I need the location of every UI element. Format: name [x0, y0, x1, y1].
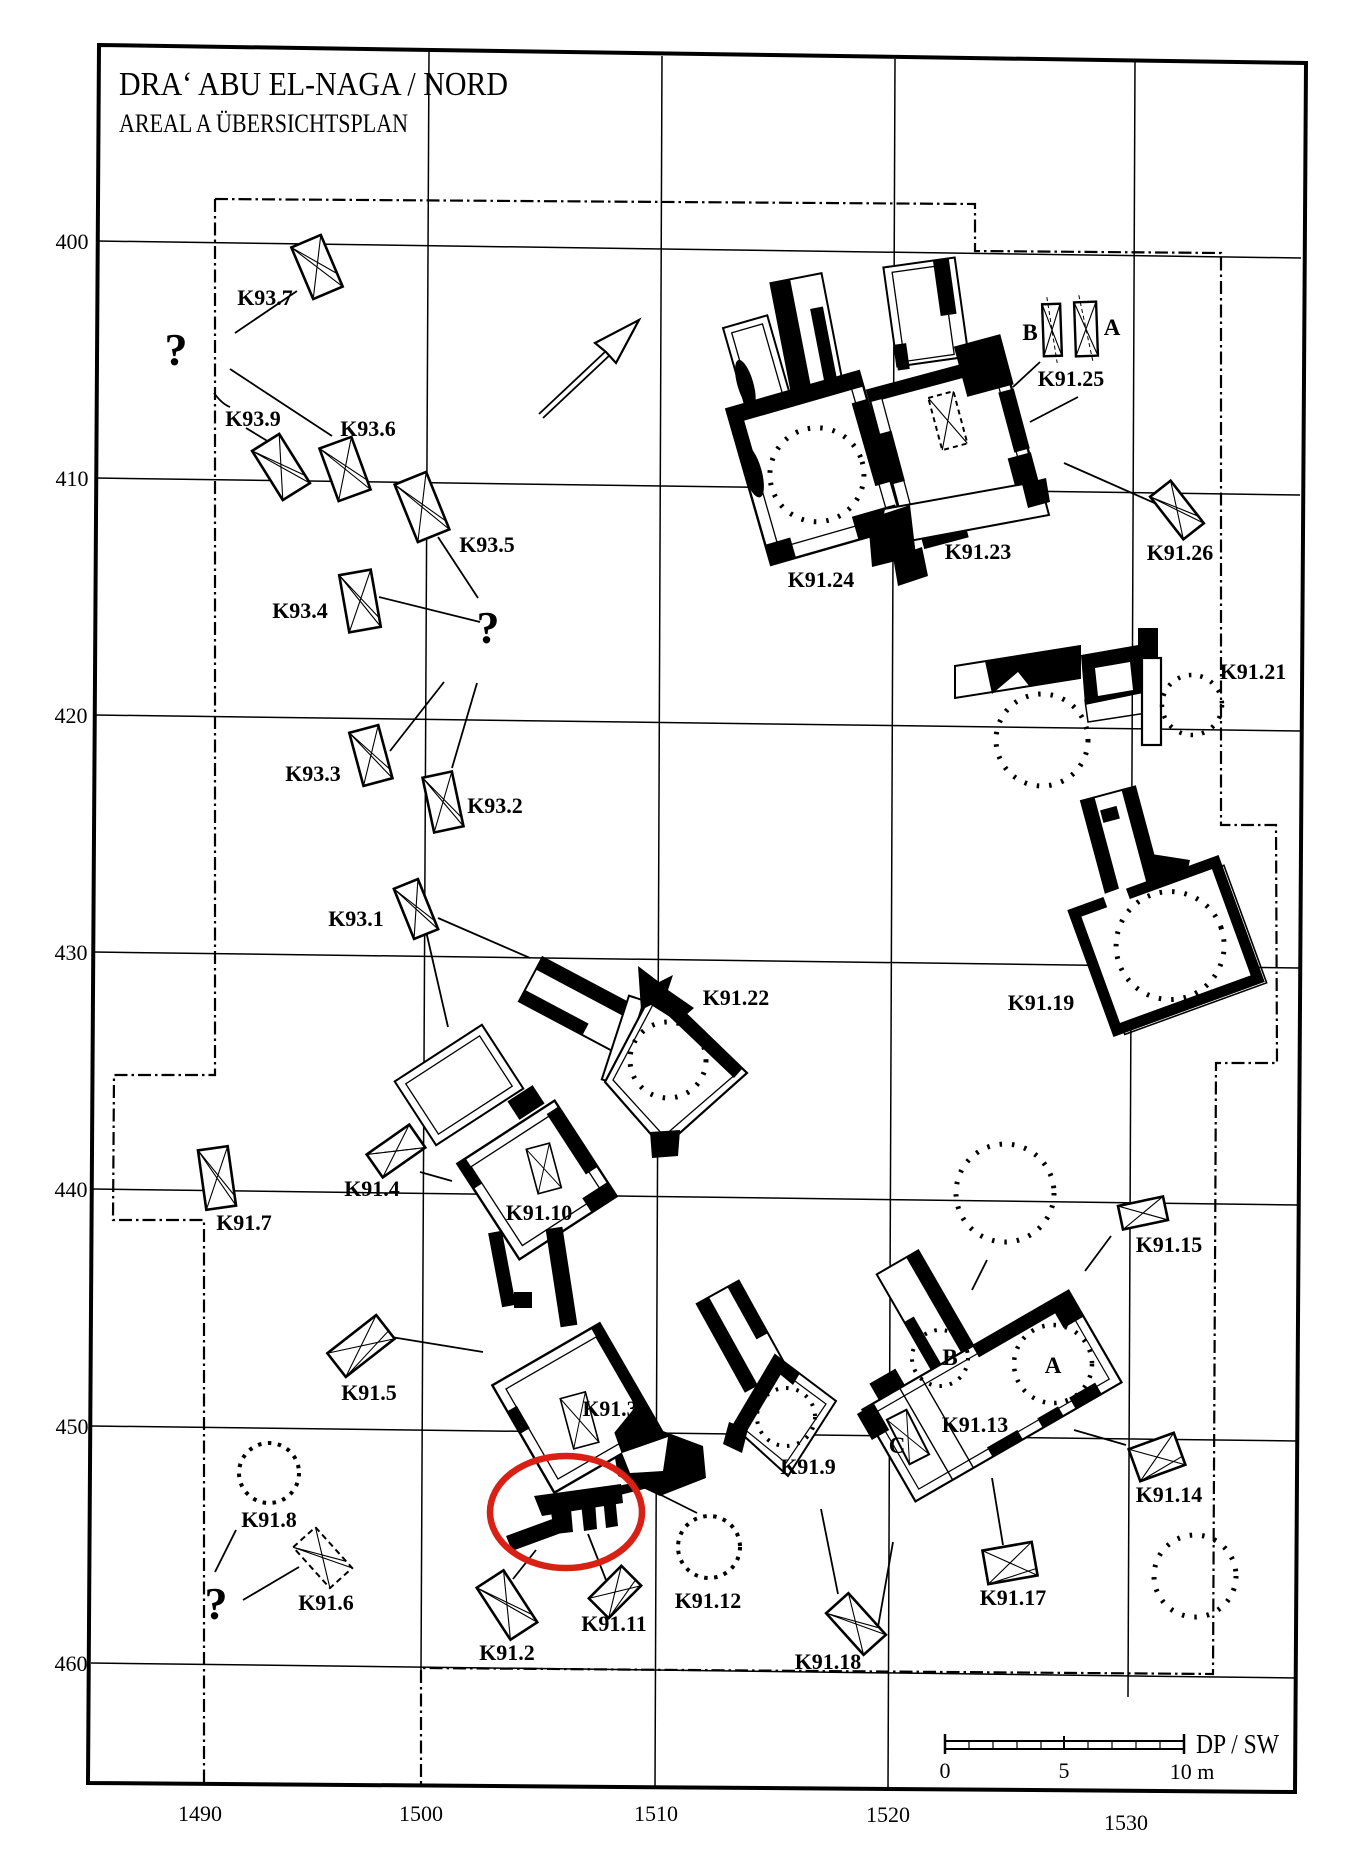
- svg-text:DP / SW: DP / SW: [1196, 1729, 1279, 1759]
- svg-text:K91.21: K91.21: [1220, 659, 1287, 684]
- svg-text:K91.25: K91.25: [1038, 366, 1105, 391]
- svg-text:K93.5: K93.5: [459, 532, 515, 557]
- svg-text:K91.12: K91.12: [675, 1588, 742, 1613]
- svg-text:K91.22: K91.22: [703, 985, 770, 1010]
- svg-text:K93.3: K93.3: [285, 761, 341, 786]
- svg-text:K91.2: K91.2: [479, 1640, 535, 1665]
- svg-text:1490: 1490: [178, 1801, 222, 1826]
- svg-text:K91.4: K91.4: [344, 1176, 400, 1201]
- svg-text:K91.5: K91.5: [341, 1380, 397, 1405]
- svg-text:DRA‘ ABU EL-NAGA / NORD: DRA‘ ABU EL-NAGA / NORD: [119, 66, 508, 103]
- svg-text:0: 0: [940, 1758, 951, 1783]
- svg-text:K91.11: K91.11: [581, 1611, 646, 1636]
- svg-text:1530: 1530: [1104, 1810, 1148, 1835]
- svg-text:K91.13: K91.13: [942, 1412, 1009, 1437]
- svg-text:B: B: [942, 1345, 957, 1370]
- svg-text:AREAL A ÜBERSICHTSPLAN: AREAL A ÜBERSICHTSPLAN: [119, 109, 408, 138]
- svg-text:420: 420: [55, 703, 88, 728]
- svg-text:K93.6: K93.6: [340, 416, 396, 441]
- svg-text:?: ?: [477, 602, 500, 653]
- svg-text:450: 450: [56, 1414, 89, 1439]
- svg-text:K91.18: K91.18: [795, 1649, 862, 1674]
- svg-text:K91.8: K91.8: [241, 1507, 297, 1532]
- svg-text:400: 400: [56, 229, 89, 254]
- svg-text:10 m: 10 m: [1170, 1759, 1215, 1784]
- svg-text:440: 440: [55, 1177, 88, 1202]
- svg-text:1510: 1510: [634, 1801, 678, 1826]
- svg-text:K93.9: K93.9: [225, 406, 281, 431]
- svg-text:430: 430: [55, 940, 88, 965]
- svg-text:1520: 1520: [866, 1802, 910, 1827]
- svg-text:K91.3: K91.3: [583, 1396, 638, 1421]
- svg-text:K91.17: K91.17: [980, 1585, 1047, 1610]
- svg-text:K91.19: K91.19: [1008, 990, 1075, 1015]
- svg-text:K91.26: K91.26: [1147, 540, 1214, 565]
- svg-text:5: 5: [1059, 1758, 1070, 1783]
- svg-text:460: 460: [55, 1651, 88, 1676]
- svg-text:K91.7: K91.7: [216, 1210, 272, 1235]
- svg-text:A: A: [1045, 1353, 1062, 1378]
- svg-text:K93.4: K93.4: [272, 598, 328, 623]
- svg-text:?: ?: [165, 324, 188, 375]
- svg-text:K93.2: K93.2: [467, 793, 523, 818]
- svg-text:K91.14: K91.14: [1136, 1482, 1203, 1507]
- svg-text:K91.15: K91.15: [1136, 1232, 1203, 1257]
- svg-text:B: B: [1022, 320, 1037, 345]
- svg-text:K91.9: K91.9: [780, 1454, 836, 1479]
- svg-text:K91.23: K91.23: [945, 539, 1012, 564]
- svg-text:K91.24: K91.24: [788, 567, 855, 592]
- svg-text:410: 410: [56, 466, 89, 491]
- svg-text:C: C: [889, 1433, 906, 1458]
- svg-text:K93.7: K93.7: [237, 285, 293, 310]
- svg-text:K91.6: K91.6: [298, 1590, 354, 1615]
- svg-text:?: ?: [205, 1578, 228, 1629]
- svg-text:A: A: [1104, 315, 1121, 340]
- svg-text:K91.10: K91.10: [506, 1200, 573, 1225]
- svg-text:1500: 1500: [399, 1801, 443, 1826]
- svg-text:K93.1: K93.1: [328, 906, 384, 931]
